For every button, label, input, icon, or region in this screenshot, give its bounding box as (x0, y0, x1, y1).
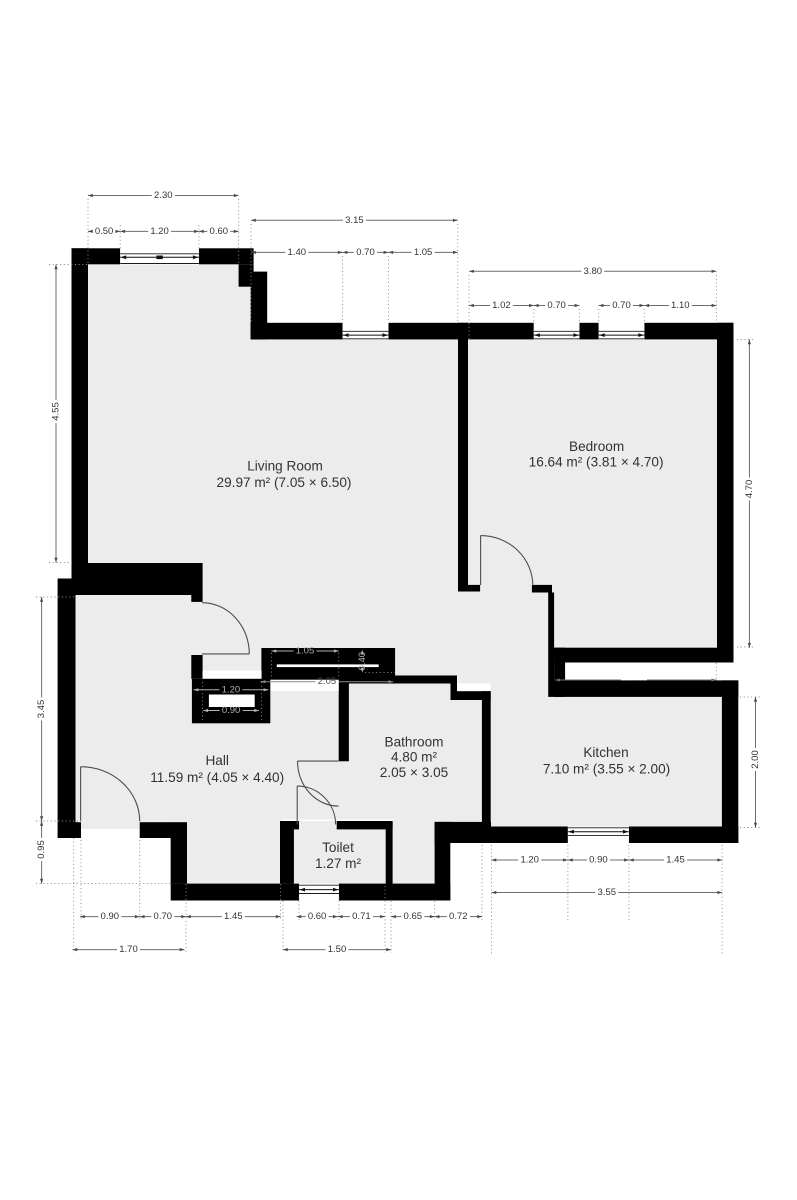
svg-text:0.90: 0.90 (222, 705, 241, 716)
svg-text:1.20: 1.20 (150, 226, 169, 237)
svg-text:3.80: 3.80 (584, 266, 603, 277)
svg-text:0.95: 0.95 (36, 840, 47, 859)
svg-text:2.05 × 3.05: 2.05 × 3.05 (380, 765, 448, 780)
svg-text:1.10: 1.10 (671, 300, 690, 311)
svg-text:1.70: 1.70 (119, 944, 138, 955)
svg-text:2.30: 2.30 (154, 190, 173, 201)
svg-text:4.80 m²: 4.80 m² (391, 750, 438, 765)
svg-text:0.60: 0.60 (210, 226, 229, 237)
svg-text:1.05: 1.05 (414, 247, 433, 258)
svg-text:29.97 m² (7.05 × 6.50): 29.97 m² (7.05 × 6.50) (217, 475, 352, 490)
svg-text:3.45: 3.45 (36, 700, 47, 719)
svg-text:1.50: 1.50 (328, 944, 347, 955)
svg-text:Hall: Hall (205, 753, 228, 768)
svg-text:Living Room: Living Room (247, 459, 323, 474)
svg-text:0.71: 0.71 (352, 911, 371, 922)
svg-text:7.10 m² (3.55 × 2.00): 7.10 m² (3.55 × 2.00) (543, 762, 670, 777)
svg-text:4.70: 4.70 (744, 480, 755, 499)
svg-text:11.59 m² (4.05 × 4.40): 11.59 m² (4.05 × 4.40) (150, 770, 284, 785)
svg-text:1.45: 1.45 (666, 855, 685, 866)
svg-text:16.64 m² (3.81 × 4.70): 16.64 m² (3.81 × 4.70) (529, 455, 664, 470)
svg-text:0.40: 0.40 (357, 652, 368, 671)
svg-text:0.90: 0.90 (101, 911, 120, 922)
svg-text:1.45: 1.45 (224, 911, 243, 922)
svg-text:Bathroom: Bathroom (385, 734, 444, 749)
svg-text:1.02: 1.02 (492, 300, 511, 311)
svg-text:Toilet: Toilet (322, 840, 354, 855)
svg-text:0.70: 0.70 (356, 247, 375, 258)
svg-text:0.50: 0.50 (95, 226, 114, 237)
svg-text:0.90: 0.90 (589, 855, 608, 866)
svg-text:2.00: 2.00 (750, 750, 761, 769)
svg-text:1.27 m²: 1.27 m² (315, 856, 362, 871)
svg-text:0.70: 0.70 (154, 911, 173, 922)
svg-text:1.05: 1.05 (296, 646, 315, 657)
svg-text:Kitchen: Kitchen (583, 745, 628, 760)
svg-text:0.60: 0.60 (308, 911, 327, 922)
svg-text:0.70: 0.70 (612, 300, 631, 311)
svg-text:1.20: 1.20 (520, 855, 539, 866)
svg-text:0.70: 0.70 (547, 300, 566, 311)
svg-text:0.65: 0.65 (404, 911, 423, 922)
svg-text:3.55: 3.55 (598, 887, 617, 898)
svg-text:4.55: 4.55 (51, 402, 62, 421)
svg-text:Bedroom: Bedroom (569, 439, 624, 454)
svg-text:1.40: 1.40 (288, 247, 307, 258)
svg-text:3.15: 3.15 (345, 215, 364, 226)
svg-text:1.20: 1.20 (222, 684, 241, 695)
svg-text:0.72: 0.72 (449, 911, 468, 922)
svg-text:2.05: 2.05 (318, 676, 337, 687)
